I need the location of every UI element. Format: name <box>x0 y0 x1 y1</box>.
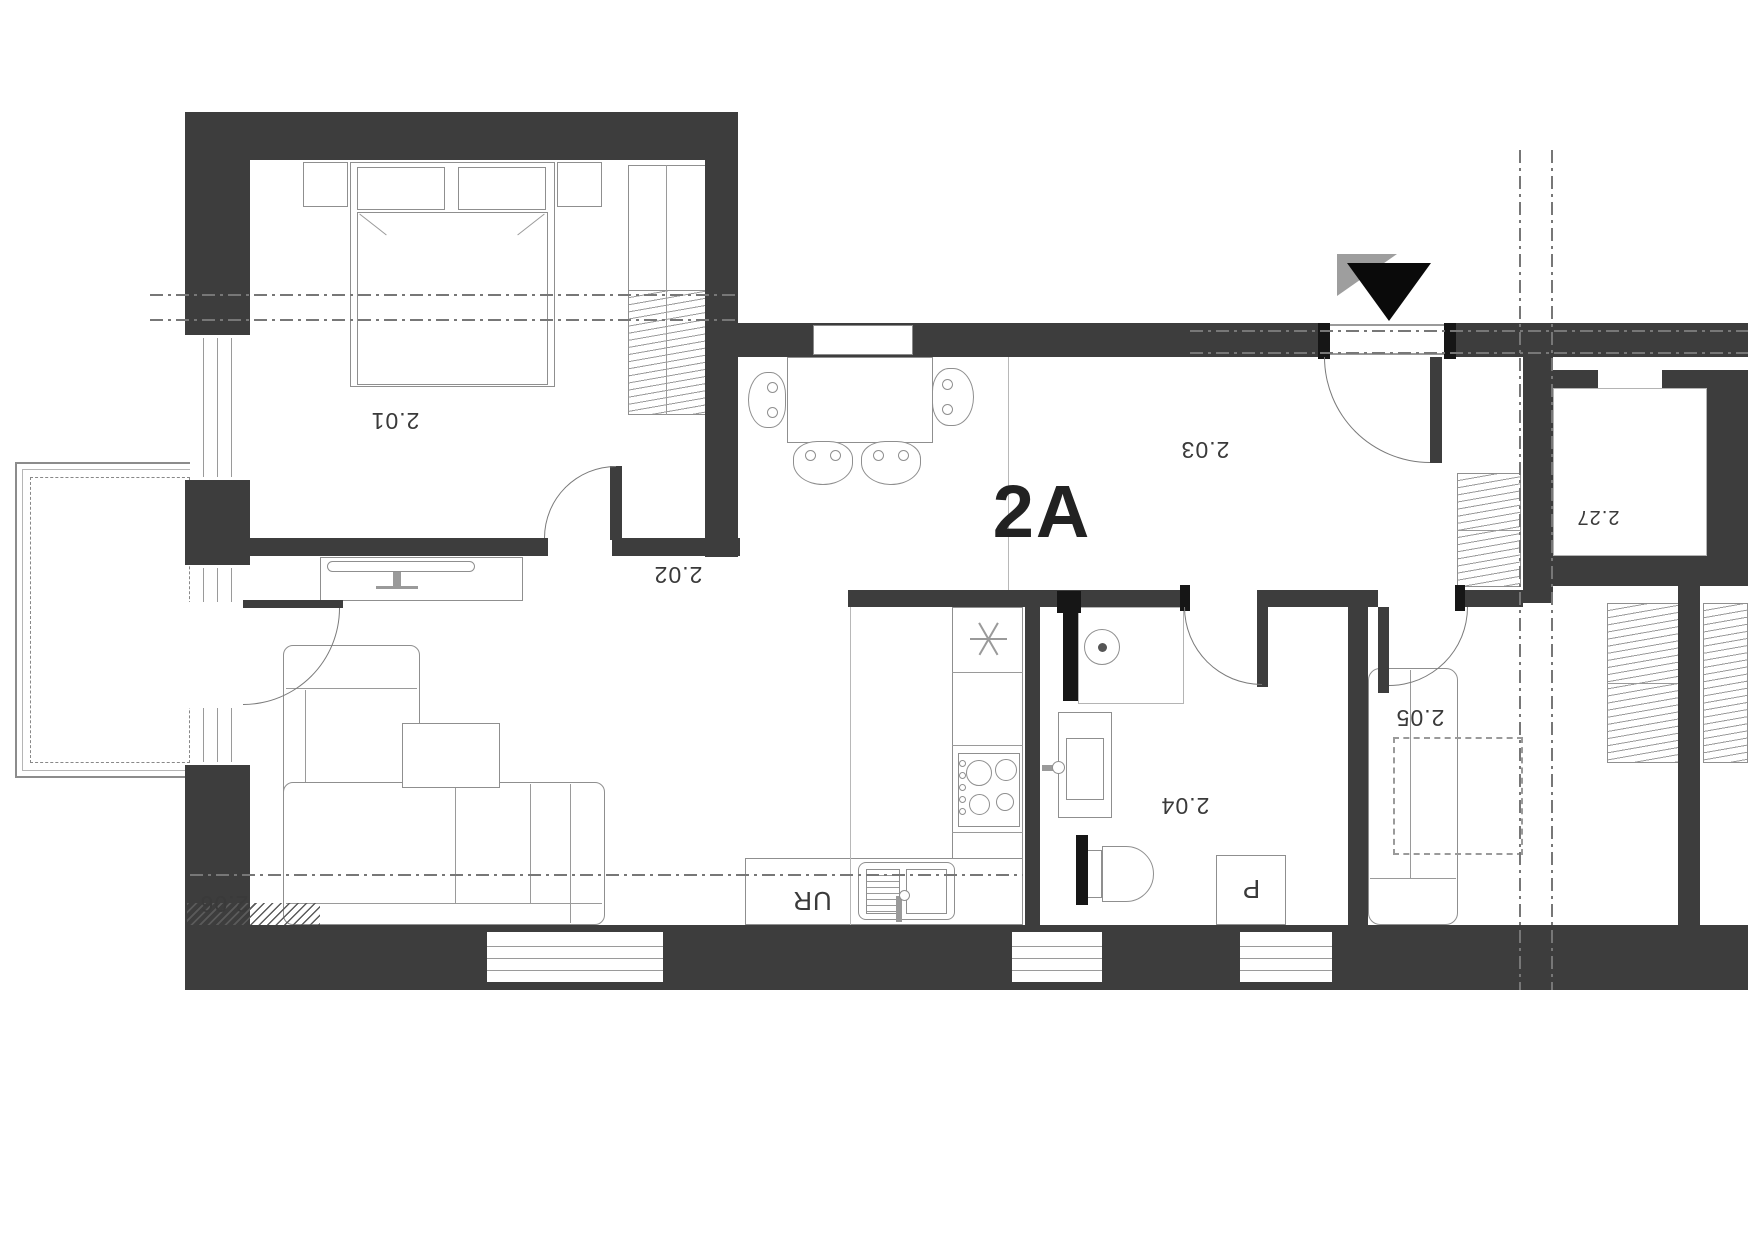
sofa-line <box>286 688 417 689</box>
wall <box>1462 590 1523 607</box>
burner <box>966 760 992 786</box>
axis-line <box>1190 330 1748 332</box>
window <box>1240 932 1332 982</box>
coffee-table <box>402 723 500 788</box>
axis-line <box>1190 352 1748 354</box>
bed-extension-dashed <box>1393 737 1523 855</box>
window-line <box>1240 958 1332 959</box>
chair <box>861 441 921 485</box>
burner <box>996 793 1014 811</box>
dining-table <box>787 357 933 443</box>
wall <box>185 112 250 335</box>
floor-line <box>850 607 851 925</box>
tv <box>327 561 475 572</box>
wall <box>1257 590 1378 607</box>
sofa-line <box>455 784 456 903</box>
chair <box>748 372 786 428</box>
window-line <box>487 958 663 959</box>
door-leaf <box>243 600 343 608</box>
sofa-line <box>570 784 571 923</box>
axis-line <box>150 294 740 296</box>
wall <box>185 925 1748 990</box>
toilet-tank <box>1086 850 1102 898</box>
window-line <box>1012 958 1102 959</box>
window <box>1012 932 1102 982</box>
room-label-2-02: 2.02 <box>628 557 728 593</box>
chair-dot <box>767 382 778 393</box>
washbasin <box>1066 738 1104 800</box>
window-line <box>1012 946 1102 947</box>
wall-niche <box>813 325 913 355</box>
window-line <box>203 338 204 477</box>
nightstand <box>303 162 348 207</box>
wall <box>1678 573 1700 925</box>
chair-dot <box>898 450 909 461</box>
unit-label: 2A <box>972 472 1112 552</box>
wardrobe <box>628 290 706 415</box>
sofa-line <box>305 690 306 782</box>
chair-dot <box>830 450 841 461</box>
room-label-2-03: 2.03 <box>1155 432 1255 468</box>
room-label-2-04: 2.04 <box>1135 788 1235 824</box>
chair-dot <box>873 450 884 461</box>
washing-machine-label: P <box>1216 871 1286 907</box>
sofa-line <box>530 784 531 903</box>
window-line <box>217 338 218 477</box>
wall <box>1348 607 1368 925</box>
chair-dot <box>805 450 816 461</box>
faucet <box>899 890 910 901</box>
burner <box>995 759 1017 781</box>
wardrobe-divider <box>1457 530 1521 531</box>
wall-shaft <box>1662 370 1707 388</box>
stove-knob <box>959 760 966 767</box>
wall-shaft <box>1553 370 1598 388</box>
room-label-2-05: 2.05 <box>1370 700 1470 736</box>
chair-dot <box>942 404 953 415</box>
duct <box>1057 591 1081 613</box>
chair-dot <box>942 379 953 390</box>
duct <box>1076 835 1088 905</box>
counter-line <box>952 672 1023 673</box>
opening-edge <box>1330 324 1444 326</box>
sofa-line <box>286 903 602 904</box>
wardrobe <box>628 165 706 291</box>
sink-label: UR <box>772 883 852 919</box>
tv-stand <box>393 572 401 586</box>
chair <box>932 368 974 426</box>
toilet <box>1102 846 1154 902</box>
stove-knob <box>959 808 966 815</box>
duct <box>1063 613 1078 701</box>
wall-shaft <box>1553 556 1747 586</box>
burner <box>969 794 990 815</box>
window-line <box>1240 946 1332 947</box>
wall-shaft <box>1523 357 1553 603</box>
window-line <box>231 338 232 477</box>
stove-knob <box>959 772 966 779</box>
wall <box>848 590 1187 607</box>
axis-line <box>150 319 740 321</box>
wall <box>185 112 738 160</box>
floor-plan: 2A 2.01 2.02 2.03 2.04 2.05 2.06 2.27 UR… <box>0 0 1748 1240</box>
wardrobe-divider <box>1607 683 1679 684</box>
room-label-2-06: 2.06 <box>174 886 274 922</box>
entrance-marker-icon <box>1347 263 1431 321</box>
door-arc <box>544 466 616 538</box>
wall <box>705 150 738 557</box>
mattress <box>357 212 548 385</box>
window-line <box>487 946 663 947</box>
window-line <box>1240 970 1332 971</box>
wall <box>220 538 548 556</box>
counter-line <box>952 832 1023 833</box>
axis-line <box>1519 150 1521 990</box>
window-line <box>487 970 663 971</box>
window <box>487 932 663 982</box>
door-leaf <box>1430 357 1442 463</box>
faucet <box>1052 761 1065 774</box>
stove-knob <box>959 784 966 791</box>
room-label-2-01: 2.01 <box>345 403 445 439</box>
nightstand <box>557 162 602 207</box>
bed-line <box>1370 878 1456 879</box>
door-leaf <box>1378 607 1389 693</box>
wall-shaft <box>1707 370 1748 586</box>
wardrobe-neighbor <box>1703 603 1748 763</box>
pillow <box>357 167 445 210</box>
pillow <box>458 167 546 210</box>
axis-line <box>190 874 1023 876</box>
window <box>190 335 246 480</box>
chair <box>793 441 853 485</box>
chair-dot <box>767 407 778 418</box>
door-arc <box>1324 357 1430 463</box>
wardrobe-divider <box>666 165 667 415</box>
window-line <box>1012 970 1102 971</box>
axis-line <box>1551 150 1553 990</box>
door-arc <box>1184 607 1262 685</box>
stove-knob <box>959 796 966 803</box>
tv-base <box>376 586 418 589</box>
shower-drain-dot <box>1098 643 1107 652</box>
door-opening <box>189 602 247 708</box>
counter-line <box>952 745 1023 746</box>
room-label-2-27: 2.27 <box>1548 499 1648 535</box>
wall <box>1025 592 1040 925</box>
balcony-axis <box>30 477 190 763</box>
